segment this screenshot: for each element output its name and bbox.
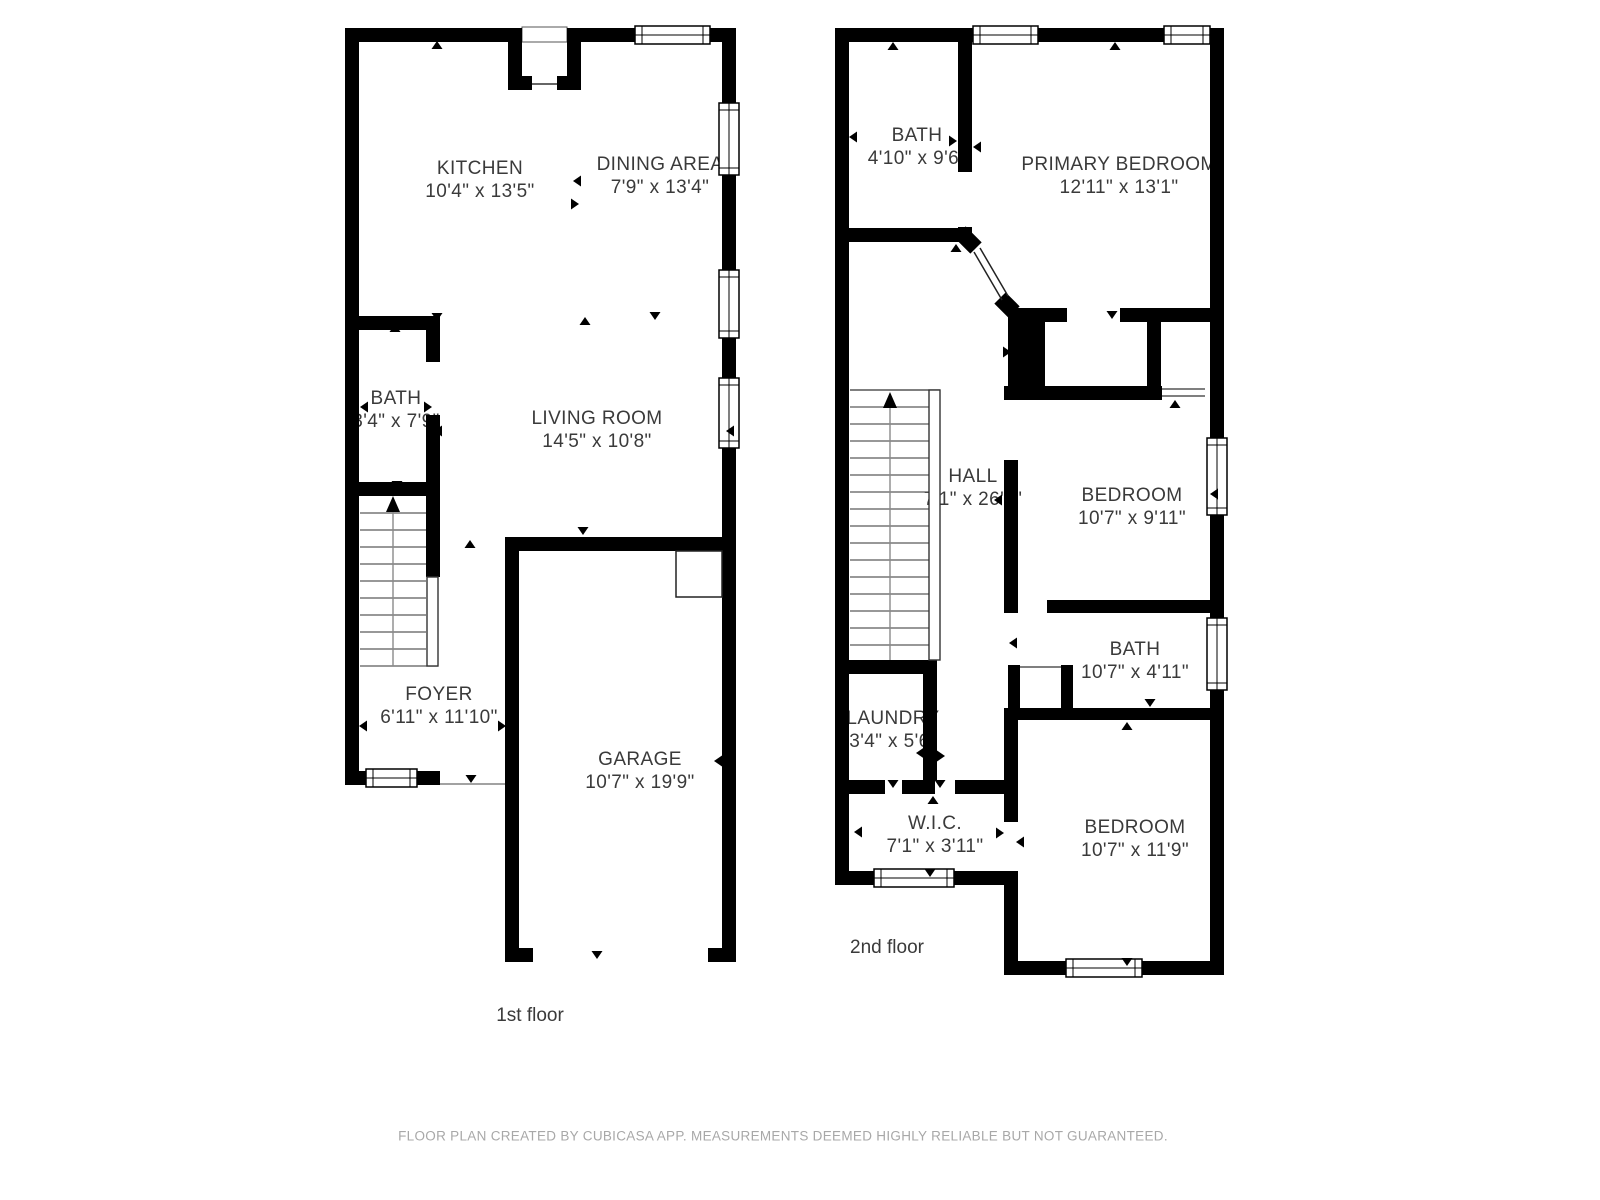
room-name: FOYER [380,683,498,706]
room-dims: 10'7" x 4'11" [1081,661,1189,684]
room-label-bedroom-mid: BEDROOM 10'7" x 9'11" [1078,484,1186,530]
footer-disclaimer: FLOOR PLAN CREATED BY CUBICASA APP. MEAS… [398,1129,1168,1144]
room-name: GARAGE [585,748,694,771]
room-name: PRIMARY BEDROOM [1021,153,1216,176]
room-name: LIVING ROOM [531,407,662,430]
room-label-foyer: FOYER 6'11" x 11'10" [380,683,498,729]
floor-label-second: 2nd floor [850,937,924,959]
room-dims: 6'11" x 11'10" [380,706,498,729]
room-label-bath-2f-top: BATH 4'10" x 9'6" [868,124,966,170]
room-name: HALL [924,465,1022,488]
room-name: BEDROOM [1078,484,1186,507]
room-name: BEDROOM [1081,816,1189,839]
room-name: W.I.C. [886,812,983,835]
room-name: DINING AREA [597,153,724,176]
room-label-wic: W.I.C. 7'1" x 3'11" [886,812,983,858]
room-dims: 7'9" x 13'4" [597,176,724,199]
floor-label-first: 1st floor [496,1005,564,1027]
room-dims: 10'7" x 19'9" [585,771,694,794]
room-dims: 10'7" x 9'11" [1078,507,1186,530]
room-dims: 12'11" x 13'1" [1021,176,1216,199]
room-name: BATH [868,124,966,147]
room-dims: 3'4" x 7'9" [352,410,439,433]
floor-plan-canvas: KITCHEN 10'4" x 13'5" DINING AREA 7'9" x… [0,0,1600,1200]
room-label-bedroom-bottom: BEDROOM 10'7" x 11'9" [1081,816,1189,862]
room-name: KITCHEN [425,157,534,180]
room-label-laundry: LAUNDRY 3'4" x 5'6" [846,707,939,753]
room-dims: 4'10" x 9'6" [868,147,966,170]
room-dims: 7'1" x 26'1" [924,488,1022,511]
room-label-hall: HALL 7'1" x 26'1" [924,465,1022,511]
room-label-bath-1f: BATH 3'4" x 7'9" [352,387,439,433]
room-label-living-room: LIVING ROOM 14'5" x 10'8" [531,407,662,453]
room-dims: 14'5" x 10'8" [531,430,662,453]
room-label-primary-bedroom: PRIMARY BEDROOM 12'11" x 13'1" [1021,153,1216,199]
room-label-kitchen: KITCHEN 10'4" x 13'5" [425,157,534,203]
room-name: BATH [352,387,439,410]
room-label-garage: GARAGE 10'7" x 19'9" [585,748,694,794]
labels-layer: KITCHEN 10'4" x 13'5" DINING AREA 7'9" x… [0,0,1600,1200]
room-name: LAUNDRY [846,707,939,730]
room-dims: 3'4" x 5'6" [846,730,939,753]
room-dims: 7'1" x 3'11" [886,835,983,858]
room-dims: 10'7" x 11'9" [1081,839,1189,862]
room-name: BATH [1081,638,1189,661]
room-label-dining-area: DINING AREA 7'9" x 13'4" [597,153,724,199]
room-dims: 10'4" x 13'5" [425,180,534,203]
room-label-bath-2f-mid: BATH 10'7" x 4'11" [1081,638,1189,684]
